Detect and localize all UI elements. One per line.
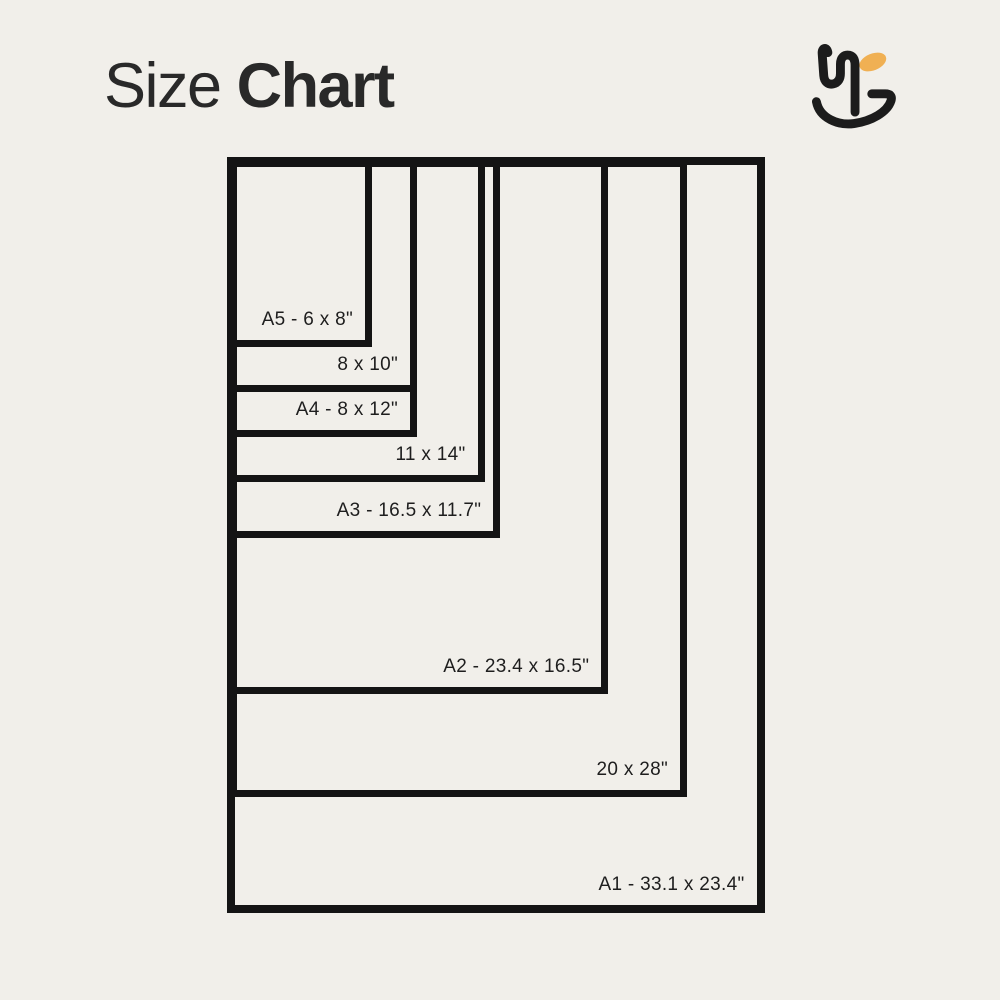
size-label-A4: A4 - 8 x 12" xyxy=(296,399,398,421)
size-label-A2: A2 - 23.4 x 16.5" xyxy=(443,656,589,678)
page: Size Chart A1 - 33.1 x 23.4"20 x 28"A2 -… xyxy=(0,0,1000,1000)
size-chart: A1 - 33.1 x 23.4"20 x 28"A2 - 23.4 x 16.… xyxy=(0,0,1000,1000)
size-rect-A5: A5 - 6 x 8" xyxy=(230,160,372,347)
size-label-A5: A5 - 6 x 8" xyxy=(262,309,353,331)
size-label-A3: A3 - 16.5 x 11.7" xyxy=(337,500,482,522)
size-label-11x14: 11 x 14" xyxy=(395,444,465,466)
size-label-20x28: 20 x 28" xyxy=(597,759,668,781)
size-label-A1: A1 - 33.1 x 23.4" xyxy=(599,874,745,896)
size-label-8x10: 8 x 10" xyxy=(337,354,398,376)
